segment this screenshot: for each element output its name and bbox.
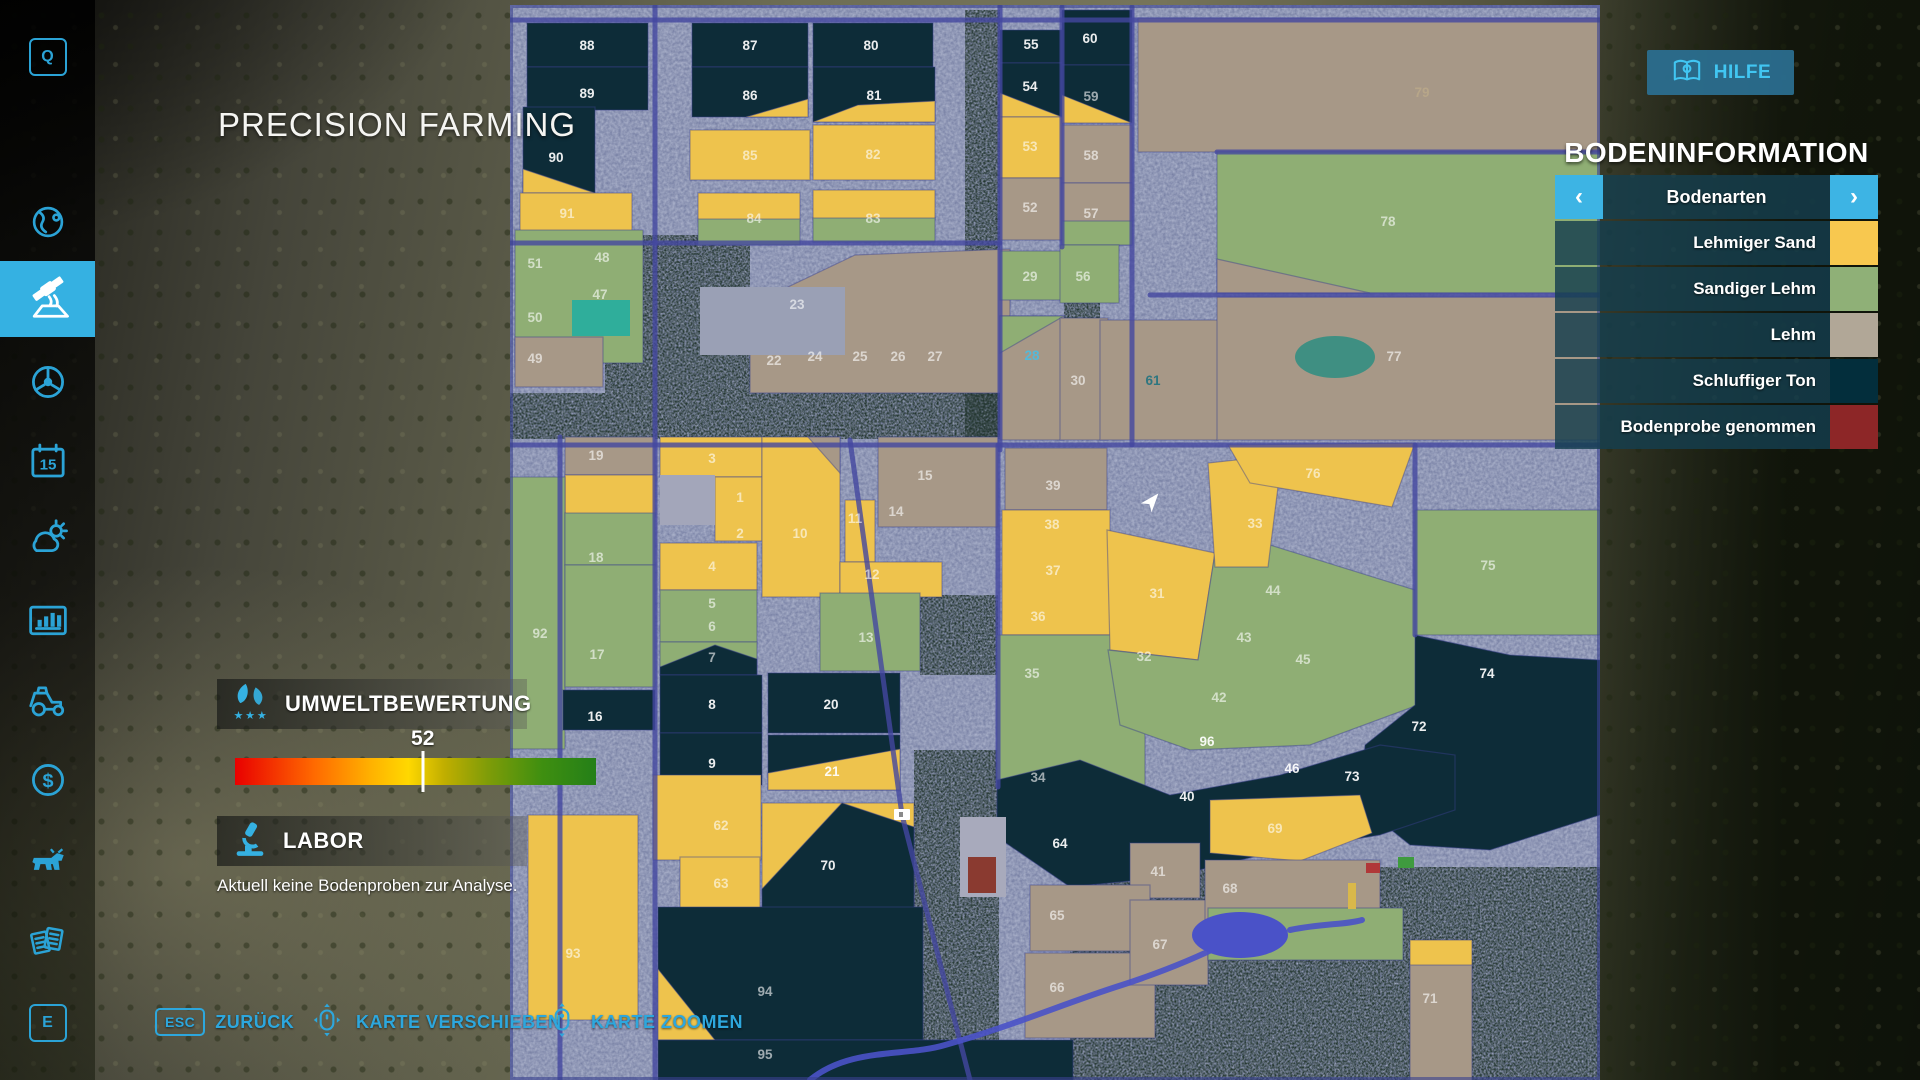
page-title: PRECISION FARMING [218, 106, 576, 144]
field-number-label: 95 [757, 1047, 773, 1062]
footer-action-zoom-map[interactable]: KARTE ZOOMEN [543, 1002, 743, 1042]
field-area[interactable] [1138, 18, 1600, 152]
environment-score-bar [235, 758, 596, 785]
field-number-label: 14 [888, 504, 904, 519]
field-number-label: 68 [1222, 881, 1238, 896]
field-number-label: 58 [1083, 148, 1099, 163]
mouse-zoom-icon [543, 1001, 581, 1044]
field-number-label: 94 [757, 984, 773, 999]
soil-layer-label: Bodenarten [1603, 175, 1830, 219]
sidebar-item-work-assignments[interactable] [0, 344, 95, 420]
mouse-pan-icon [308, 1001, 346, 1044]
help-button[interactable]: ? HILFE [1647, 50, 1794, 95]
field-number-label: 37 [1045, 563, 1060, 578]
field-number-label: 36 [1030, 609, 1046, 624]
svg-text:?: ? [1685, 66, 1689, 73]
lab-panel-title: LABOR [283, 828, 364, 854]
field-number-label: 61 [1145, 373, 1161, 388]
e-key-icon: E [29, 1004, 67, 1042]
field-number-label: 45 [1295, 652, 1311, 667]
footer-action-pan-map[interactable]: KARTE VERSCHIEBEN [308, 1002, 562, 1042]
environment-score-panel: ★★★ UMWELTBEWERTUNG 52 [217, 679, 597, 809]
field-number-label: 66 [1049, 980, 1065, 995]
field-number-label: 7 [708, 650, 716, 665]
legend-label: Schluffiger Ton [1555, 359, 1830, 403]
field-number-label: 74 [1479, 666, 1495, 681]
field-number-label: 49 [527, 351, 542, 366]
legend-label: Bodenprobe genommen [1555, 405, 1830, 449]
field-number-label: 26 [890, 349, 906, 364]
map-feature [660, 475, 715, 525]
field-number-label: 79 [1414, 85, 1429, 100]
field-number-label: 53 [1022, 139, 1038, 154]
footer-action-label: ZURÜCK [215, 1012, 294, 1033]
soil-information-panel: BODENINFORMATION ‹ Bodenarten › Lehmiger… [1555, 137, 1878, 451]
field-area[interactable] [1217, 297, 1600, 440]
field-number-label: 13 [858, 630, 874, 645]
field-number-label: 10 [792, 526, 807, 541]
field-number-label: 43 [1236, 630, 1252, 645]
tractor-icon [25, 677, 71, 723]
field-number-label: 69 [1267, 821, 1282, 836]
svg-text:★★★: ★★★ [233, 708, 268, 721]
satellite-icon [25, 276, 71, 322]
field-area[interactable] [762, 437, 840, 597]
field-area[interactable] [1062, 221, 1132, 245]
forest-area [920, 595, 998, 675]
field-number-label: 47 [592, 287, 607, 302]
field-number-label: 28 [1024, 348, 1040, 363]
field-number-label: 93 [565, 946, 581, 961]
field-number-label: 72 [1411, 719, 1426, 734]
field-number-label: 30 [1070, 373, 1085, 388]
field-number-label: 18 [588, 550, 604, 565]
field-number-label: 83 [865, 211, 881, 226]
field-number-label: 8 [708, 697, 716, 712]
field-area[interactable] [565, 513, 655, 565]
field-number-label: 89 [579, 86, 594, 101]
map-feature [968, 857, 996, 893]
legend-row: Sandiger Lehm [1555, 267, 1878, 311]
dollar-icon: $ [27, 759, 69, 801]
map-feature [1398, 857, 1414, 868]
field-number-label: 38 [1044, 517, 1060, 532]
leaf-stars-icon: ★★★ [230, 681, 272, 728]
menu-sidebar: Q 15$ E [0, 0, 95, 1080]
field-number-label: 65 [1049, 908, 1065, 923]
environment-score-value: 52 [411, 727, 434, 751]
field-number-label: 20 [823, 697, 838, 712]
field-number-label: 31 [1149, 586, 1165, 601]
lab-panel-header: LABOR [217, 816, 527, 866]
field-area[interactable] [1410, 965, 1472, 1080]
field-number-label: 67 [1152, 937, 1167, 952]
legend-color-swatch [1830, 313, 1878, 357]
field-number-label: 75 [1480, 558, 1496, 573]
svg-text:$: $ [42, 770, 53, 792]
environment-score-scale: 52 [235, 727, 596, 797]
field-number-label: 73 [1344, 769, 1360, 784]
chevron-right-icon[interactable]: › [1830, 175, 1878, 219]
field-number-label: 91 [559, 206, 575, 221]
soil-layer-selector: ‹ Bodenarten › [1555, 175, 1878, 219]
field-number-label: 33 [1247, 516, 1263, 531]
footer-action-label: KARTE VERSCHIEBEN [356, 1012, 562, 1033]
forest-area [510, 393, 1000, 439]
soil-panel-title: BODENINFORMATION [1555, 137, 1878, 169]
bar-chart-icon [26, 599, 70, 643]
field-number-label: 24 [807, 349, 823, 364]
precision-farming-map-screen: 8889909151484750498786858480818283232224… [0, 0, 1920, 1080]
field-area[interactable] [840, 562, 942, 597]
field-number-label: 54 [1022, 79, 1038, 94]
sidebar-item-statistics[interactable] [0, 583, 95, 659]
lab-panel: LABOR Aktuell keine Bodenproben zur Anal… [217, 816, 597, 913]
field-number-label: 56 [1075, 269, 1091, 284]
field-number-label: 34 [1030, 770, 1046, 785]
field-number-label: 27 [927, 349, 942, 364]
sidebar-item-animals[interactable] [0, 825, 95, 901]
legend-color-swatch [1830, 267, 1878, 311]
field-number-label: 85 [742, 148, 758, 163]
field-number-label: 63 [713, 876, 729, 891]
environment-score-marker [421, 751, 424, 792]
field-number-label: 86 [742, 88, 758, 103]
field-number-label: 35 [1024, 666, 1040, 681]
map-feature [1348, 883, 1356, 909]
field-number-label: 15 [917, 468, 933, 483]
field-number-label: 59 [1083, 89, 1098, 104]
sidebar-item-map-overview[interactable] [0, 184, 95, 260]
map-feature [700, 287, 845, 355]
field-number-label: 17 [589, 647, 604, 662]
field-number-label: 22 [766, 353, 781, 368]
map-feature [1295, 336, 1375, 378]
field-number-label: 41 [1150, 864, 1166, 879]
field-number-label: 40 [1179, 789, 1194, 804]
contracts-icon [25, 920, 71, 966]
field-number-label: 39 [1045, 478, 1060, 493]
field-number-label: 80 [863, 38, 878, 53]
sidebar-item-calendar[interactable]: 15 [0, 424, 95, 500]
field-number-label: 84 [746, 211, 762, 226]
sidebar-bottom-key-hint: E [0, 1004, 95, 1042]
esc-key-icon: ESC [155, 1008, 205, 1036]
field-number-label: 6 [708, 619, 716, 634]
field-number-label: 52 [1022, 200, 1037, 215]
sidebar-item-garage[interactable] [0, 662, 95, 738]
field-number-label: 11 [848, 511, 863, 526]
field-number-label: 90 [548, 150, 563, 165]
field-number-label: 70 [820, 858, 835, 873]
field-number-label: 87 [742, 38, 757, 53]
field-number-label: 60 [1082, 31, 1097, 46]
footer-action-label: KARTE ZOOMEN [591, 1012, 743, 1033]
legend-label: Sandiger Lehm [1555, 267, 1830, 311]
field-area[interactable] [658, 1040, 1073, 1080]
field-number-label: 3 [708, 451, 716, 466]
globe-icon [28, 202, 68, 242]
field-area[interactable] [520, 193, 632, 233]
lab-status-message: Aktuell keine Bodenproben zur Analyse. [217, 876, 597, 896]
map-feature [572, 300, 630, 336]
field-number-label: 88 [579, 38, 595, 53]
legend-row: Lehmiger Sand [1555, 221, 1878, 265]
field-number-label: 29 [1022, 269, 1037, 284]
sidebar-item-finances[interactable]: $ [0, 742, 95, 818]
field-number-label: 2 [736, 526, 744, 541]
field-number-label: 77 [1386, 349, 1401, 364]
field-number-label: 44 [1265, 583, 1281, 598]
environment-panel-title: UMWELTBEWERTUNG [285, 691, 532, 717]
sidebar-item-precision-farming[interactable] [0, 261, 95, 337]
legend-color-swatch [1830, 359, 1878, 403]
field-number-label: 92 [532, 626, 547, 641]
footer-action-back[interactable]: ESCZURÜCK [155, 1002, 294, 1042]
field-number-label: 19 [588, 448, 603, 463]
field-area[interactable] [1415, 510, 1600, 635]
field-number-label: 57 [1083, 206, 1098, 221]
environment-panel-header: ★★★ UMWELTBEWERTUNG [217, 679, 527, 729]
cow-icon [25, 840, 71, 886]
soil-map[interactable]: 8889909151484750498786858480818283232224… [510, 5, 1600, 1080]
legend-row: Bodenprobe genommen [1555, 405, 1878, 449]
field-area[interactable] [565, 565, 655, 687]
legend-color-swatch [1830, 221, 1878, 265]
field-number-label: 21 [824, 764, 840, 779]
legend-label: Lehm [1555, 313, 1830, 357]
svg-text:15: 15 [39, 457, 56, 474]
help-button-label: HILFE [1714, 62, 1771, 84]
field-number-label: 96 [1199, 734, 1215, 749]
legend-label: Lehmiger Sand [1555, 221, 1830, 265]
calendar-icon: 15 [27, 441, 69, 483]
field-area[interactable] [653, 775, 761, 860]
field-number-label: 25 [852, 349, 868, 364]
sidebar-item-weather[interactable] [0, 501, 95, 577]
field-number-label: 81 [866, 88, 882, 103]
field-number-label: 82 [865, 147, 880, 162]
q-key-icon: Q [29, 38, 67, 76]
field-number-label: 76 [1305, 466, 1321, 481]
field-number-label: 62 [713, 818, 728, 833]
help-book-icon: ? [1670, 55, 1704, 91]
field-number-label: 1 [736, 490, 744, 505]
field-number-label: 64 [1052, 836, 1068, 851]
chevron-left-icon[interactable]: ‹ [1555, 175, 1603, 219]
field-number-label: 5 [708, 596, 716, 611]
field-number-label: 55 [1023, 37, 1039, 52]
field-number-label: 48 [594, 250, 610, 265]
legend-color-swatch [1830, 405, 1878, 449]
sidebar-top-key-hint: Q [0, 38, 95, 76]
steering-wheel-icon [27, 361, 69, 403]
sidebar-item-contracts[interactable] [0, 905, 95, 981]
field-number-label: 78 [1380, 214, 1396, 229]
field-number-label: 50 [527, 310, 542, 325]
map-feature [1366, 863, 1380, 873]
field-number-label: 12 [864, 567, 879, 582]
field-number-label: 42 [1211, 690, 1226, 705]
legend-row: Schluffiger Ton [1555, 359, 1878, 403]
field-number-label: 9 [708, 756, 716, 771]
microscope-icon [230, 819, 270, 864]
weather-icon [26, 517, 70, 561]
field-number-label: 4 [708, 559, 716, 574]
field-number-label: 46 [1284, 761, 1300, 776]
field-area[interactable] [565, 475, 655, 517]
field-number-label: 71 [1422, 991, 1438, 1006]
legend-row: Lehm [1555, 313, 1878, 357]
field-number-label: 23 [789, 297, 805, 312]
field-number-label: 51 [527, 256, 543, 271]
field-number-label: 32 [1136, 649, 1151, 664]
